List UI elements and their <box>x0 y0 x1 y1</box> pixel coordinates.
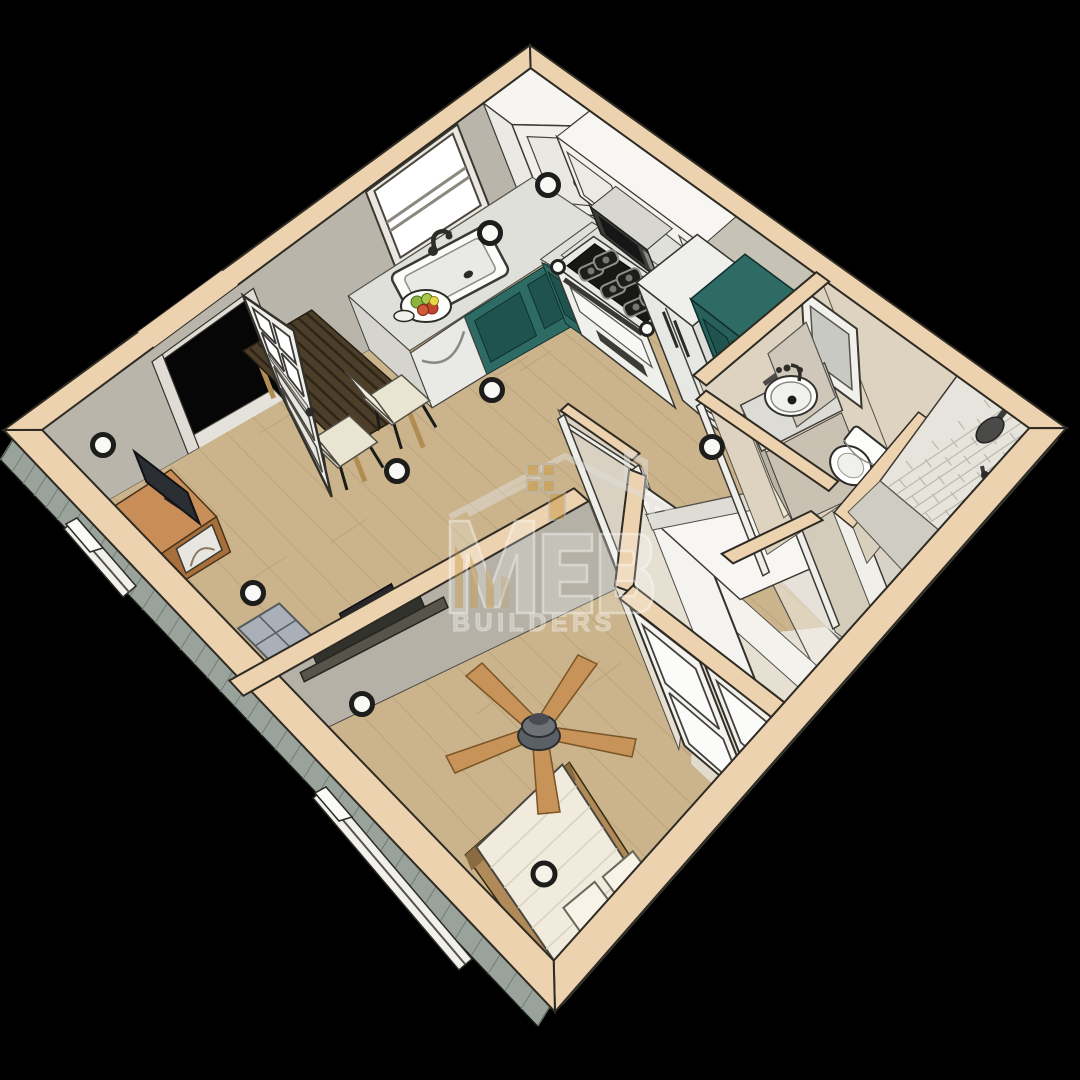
svg-text:BUILDERS: BUILDERS <box>452 609 616 637</box>
